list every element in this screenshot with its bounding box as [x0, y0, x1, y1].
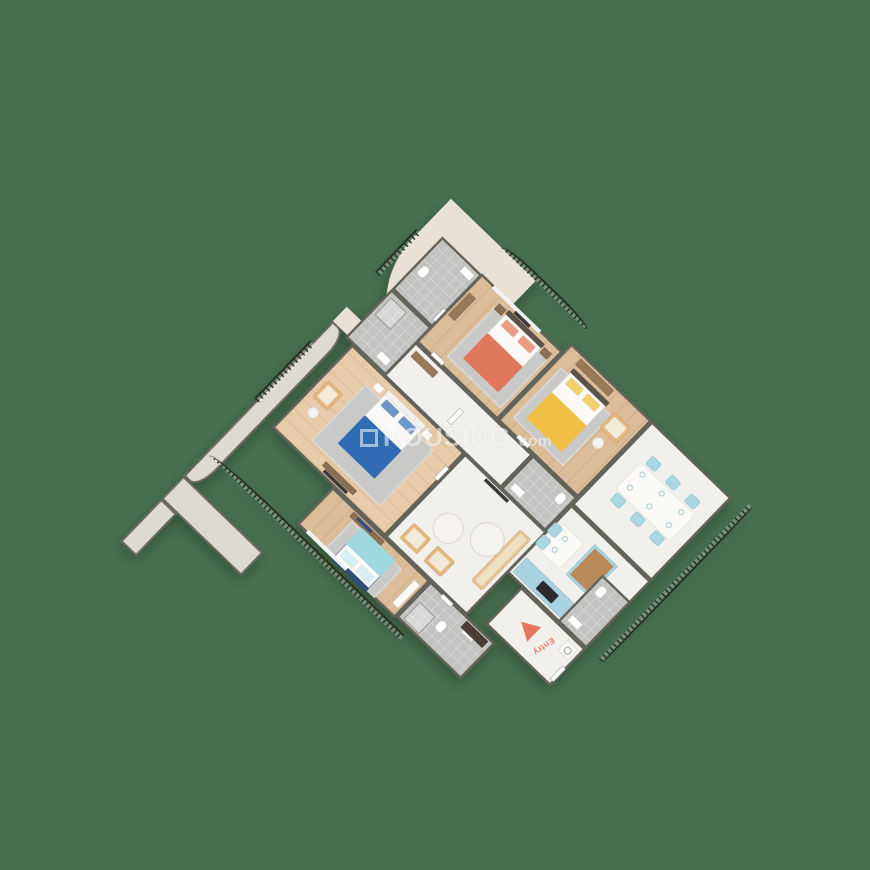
- washing-machine-icon: [558, 640, 578, 660]
- toilet-icon: [416, 264, 431, 279]
- housing-watermark: HOUSING .com: [360, 422, 552, 453]
- sink-icon: [459, 266, 475, 281]
- side-table: [590, 435, 607, 452]
- entry-label: Entry: [531, 635, 556, 657]
- entry-arrow-icon: [514, 615, 541, 642]
- toilet-icon: [434, 619, 449, 634]
- toilet-icon: [553, 491, 568, 506]
- watermark-suffix: .com: [514, 433, 551, 451]
- toilet-icon: [594, 584, 609, 599]
- sink-icon: [376, 351, 392, 366]
- shower-icon: [374, 297, 406, 330]
- side-table: [305, 404, 322, 421]
- armchair: [312, 380, 343, 411]
- coffee-table: [426, 506, 470, 550]
- sink-icon: [567, 615, 583, 630]
- sink-icon: [510, 483, 526, 498]
- shower-icon: [403, 602, 435, 635]
- watermark-brand: HOUSING: [383, 422, 511, 453]
- armchair: [423, 546, 455, 578]
- balcony-left: [120, 499, 177, 557]
- floor-plan-scene: Entry HOUSING .com: [0, 0, 870, 870]
- isometric-plan: Entry: [208, 199, 760, 749]
- housing-logo-icon: [360, 429, 378, 447]
- entry-door: [550, 666, 566, 682]
- armchair: [400, 523, 432, 555]
